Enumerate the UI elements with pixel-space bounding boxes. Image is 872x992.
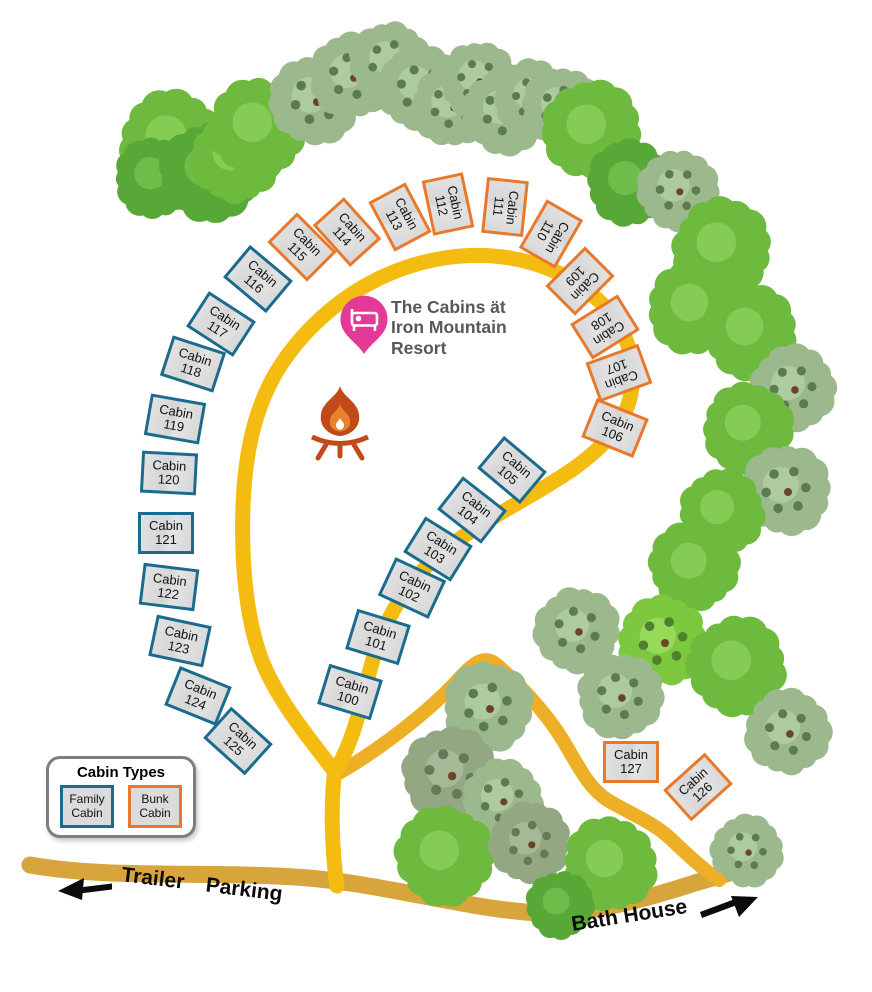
resort-title-line3: Resort (391, 338, 507, 358)
legend-bunk-line2: Cabin (139, 807, 170, 820)
cabin-number: 123 (166, 639, 190, 657)
trailer-parking-arrow (58, 878, 112, 900)
legend-family-cabin-swatch: Family Cabin (60, 785, 114, 828)
cabin-number: 120 (157, 472, 179, 487)
road-loop-stem (332, 768, 337, 886)
bath-house-arrow (700, 896, 758, 918)
legend-title: Cabin Types (49, 764, 193, 781)
cabin-122: Cabin122 (139, 563, 200, 612)
resort-map: The Cabins ät Iron Mountain Resort Cabin… (0, 0, 872, 992)
resort-title-line2: Iron Mountain (391, 317, 507, 337)
tree-icon (577, 654, 664, 739)
cabin-number: 122 (156, 586, 179, 603)
legend-row: Family Cabin Bunk Cabin (49, 785, 193, 828)
location-pin-icon (341, 296, 388, 354)
legend-bunk-line1: Bunk (141, 793, 168, 806)
cabin-number: 119 (162, 417, 185, 435)
legend-family-line2: Cabin (71, 807, 102, 820)
cabin-number: 127 (620, 762, 642, 776)
cabin-111: Cabin111 (481, 177, 529, 237)
cabin-types-legend: Cabin Types Family Cabin Bunk Cabin (46, 756, 196, 838)
resort-title-line1: The Cabins ät (391, 297, 507, 317)
cabin-121: Cabin121 (138, 512, 194, 554)
resort-title: The Cabins ät Iron Mountain Resort (391, 297, 507, 358)
cabin-number: 121 (155, 533, 177, 547)
legend-family-line1: Family (69, 793, 104, 806)
map-canvas (0, 0, 872, 992)
campfire-icon (312, 386, 368, 458)
cabin-number: 112 (432, 194, 450, 217)
tree-cluster (116, 21, 837, 940)
cabin-word: Cabin (614, 748, 648, 762)
cabin-number: 111 (490, 196, 506, 217)
cabin-120: Cabin120 (140, 451, 198, 496)
cabin-127: Cabin127 (603, 741, 659, 783)
legend-bunk-cabin-swatch: Bunk Cabin (128, 785, 182, 828)
cabin-word: Cabin (149, 519, 183, 533)
